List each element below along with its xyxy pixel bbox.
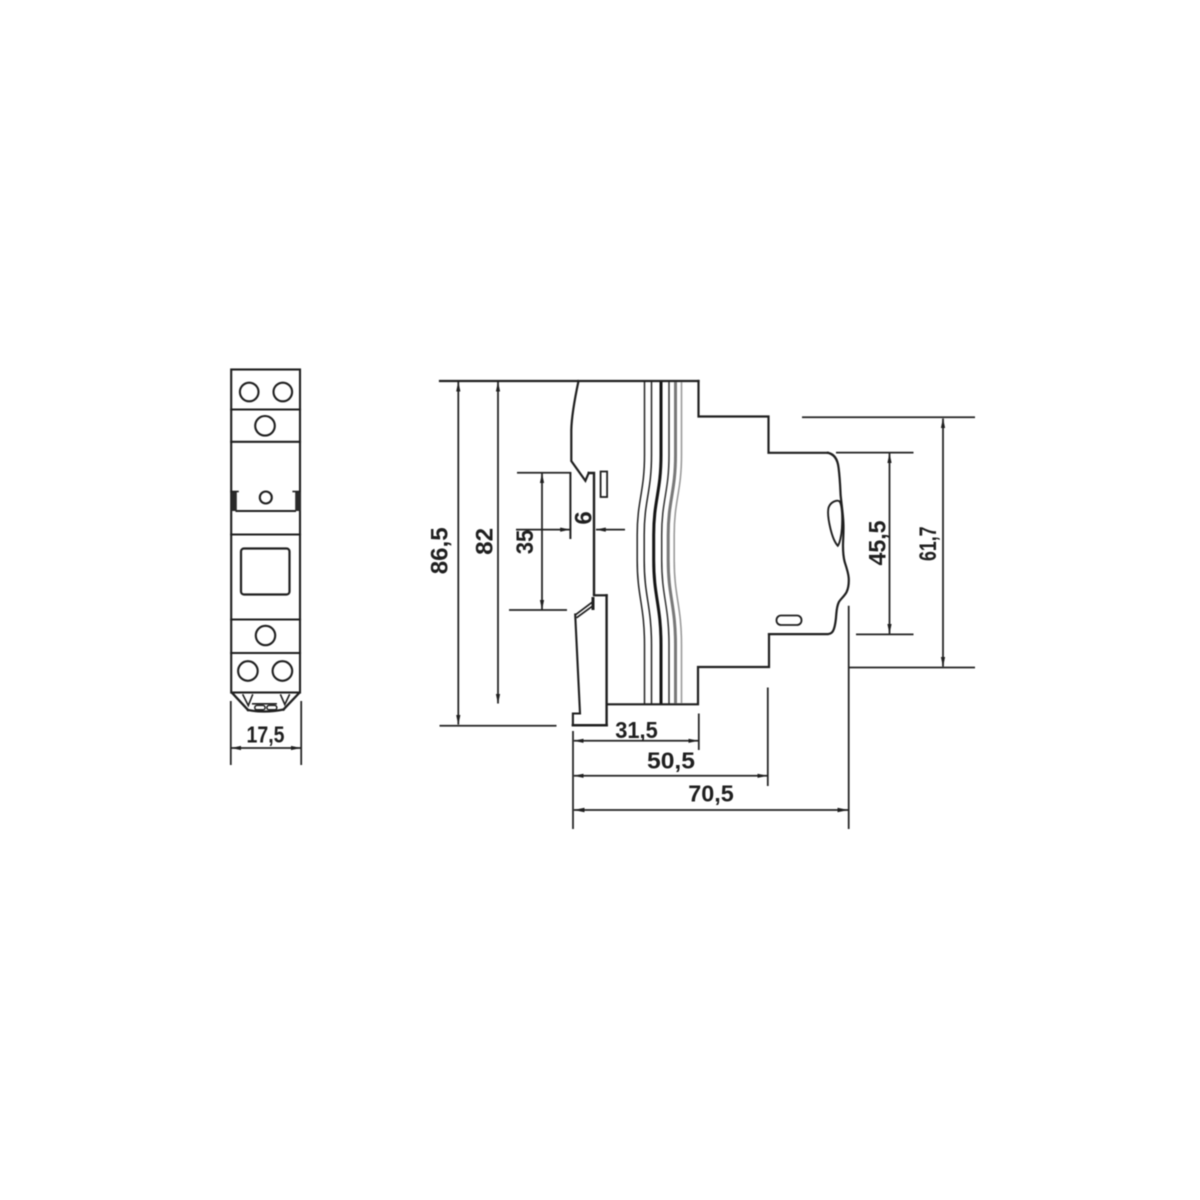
svg-text:82: 82 (472, 528, 499, 555)
svg-text:61,7: 61,7 (915, 526, 942, 561)
svg-text:50,5: 50,5 (647, 748, 695, 774)
svg-text:35: 35 (512, 530, 539, 555)
svg-text:6: 6 (570, 511, 597, 524)
svg-text:86,5: 86,5 (427, 527, 454, 574)
svg-text:31,5: 31,5 (615, 717, 658, 743)
svg-text:70,5: 70,5 (688, 781, 734, 807)
svg-text:17,5: 17,5 (247, 722, 285, 748)
svg-text:45,5: 45,5 (865, 521, 892, 566)
